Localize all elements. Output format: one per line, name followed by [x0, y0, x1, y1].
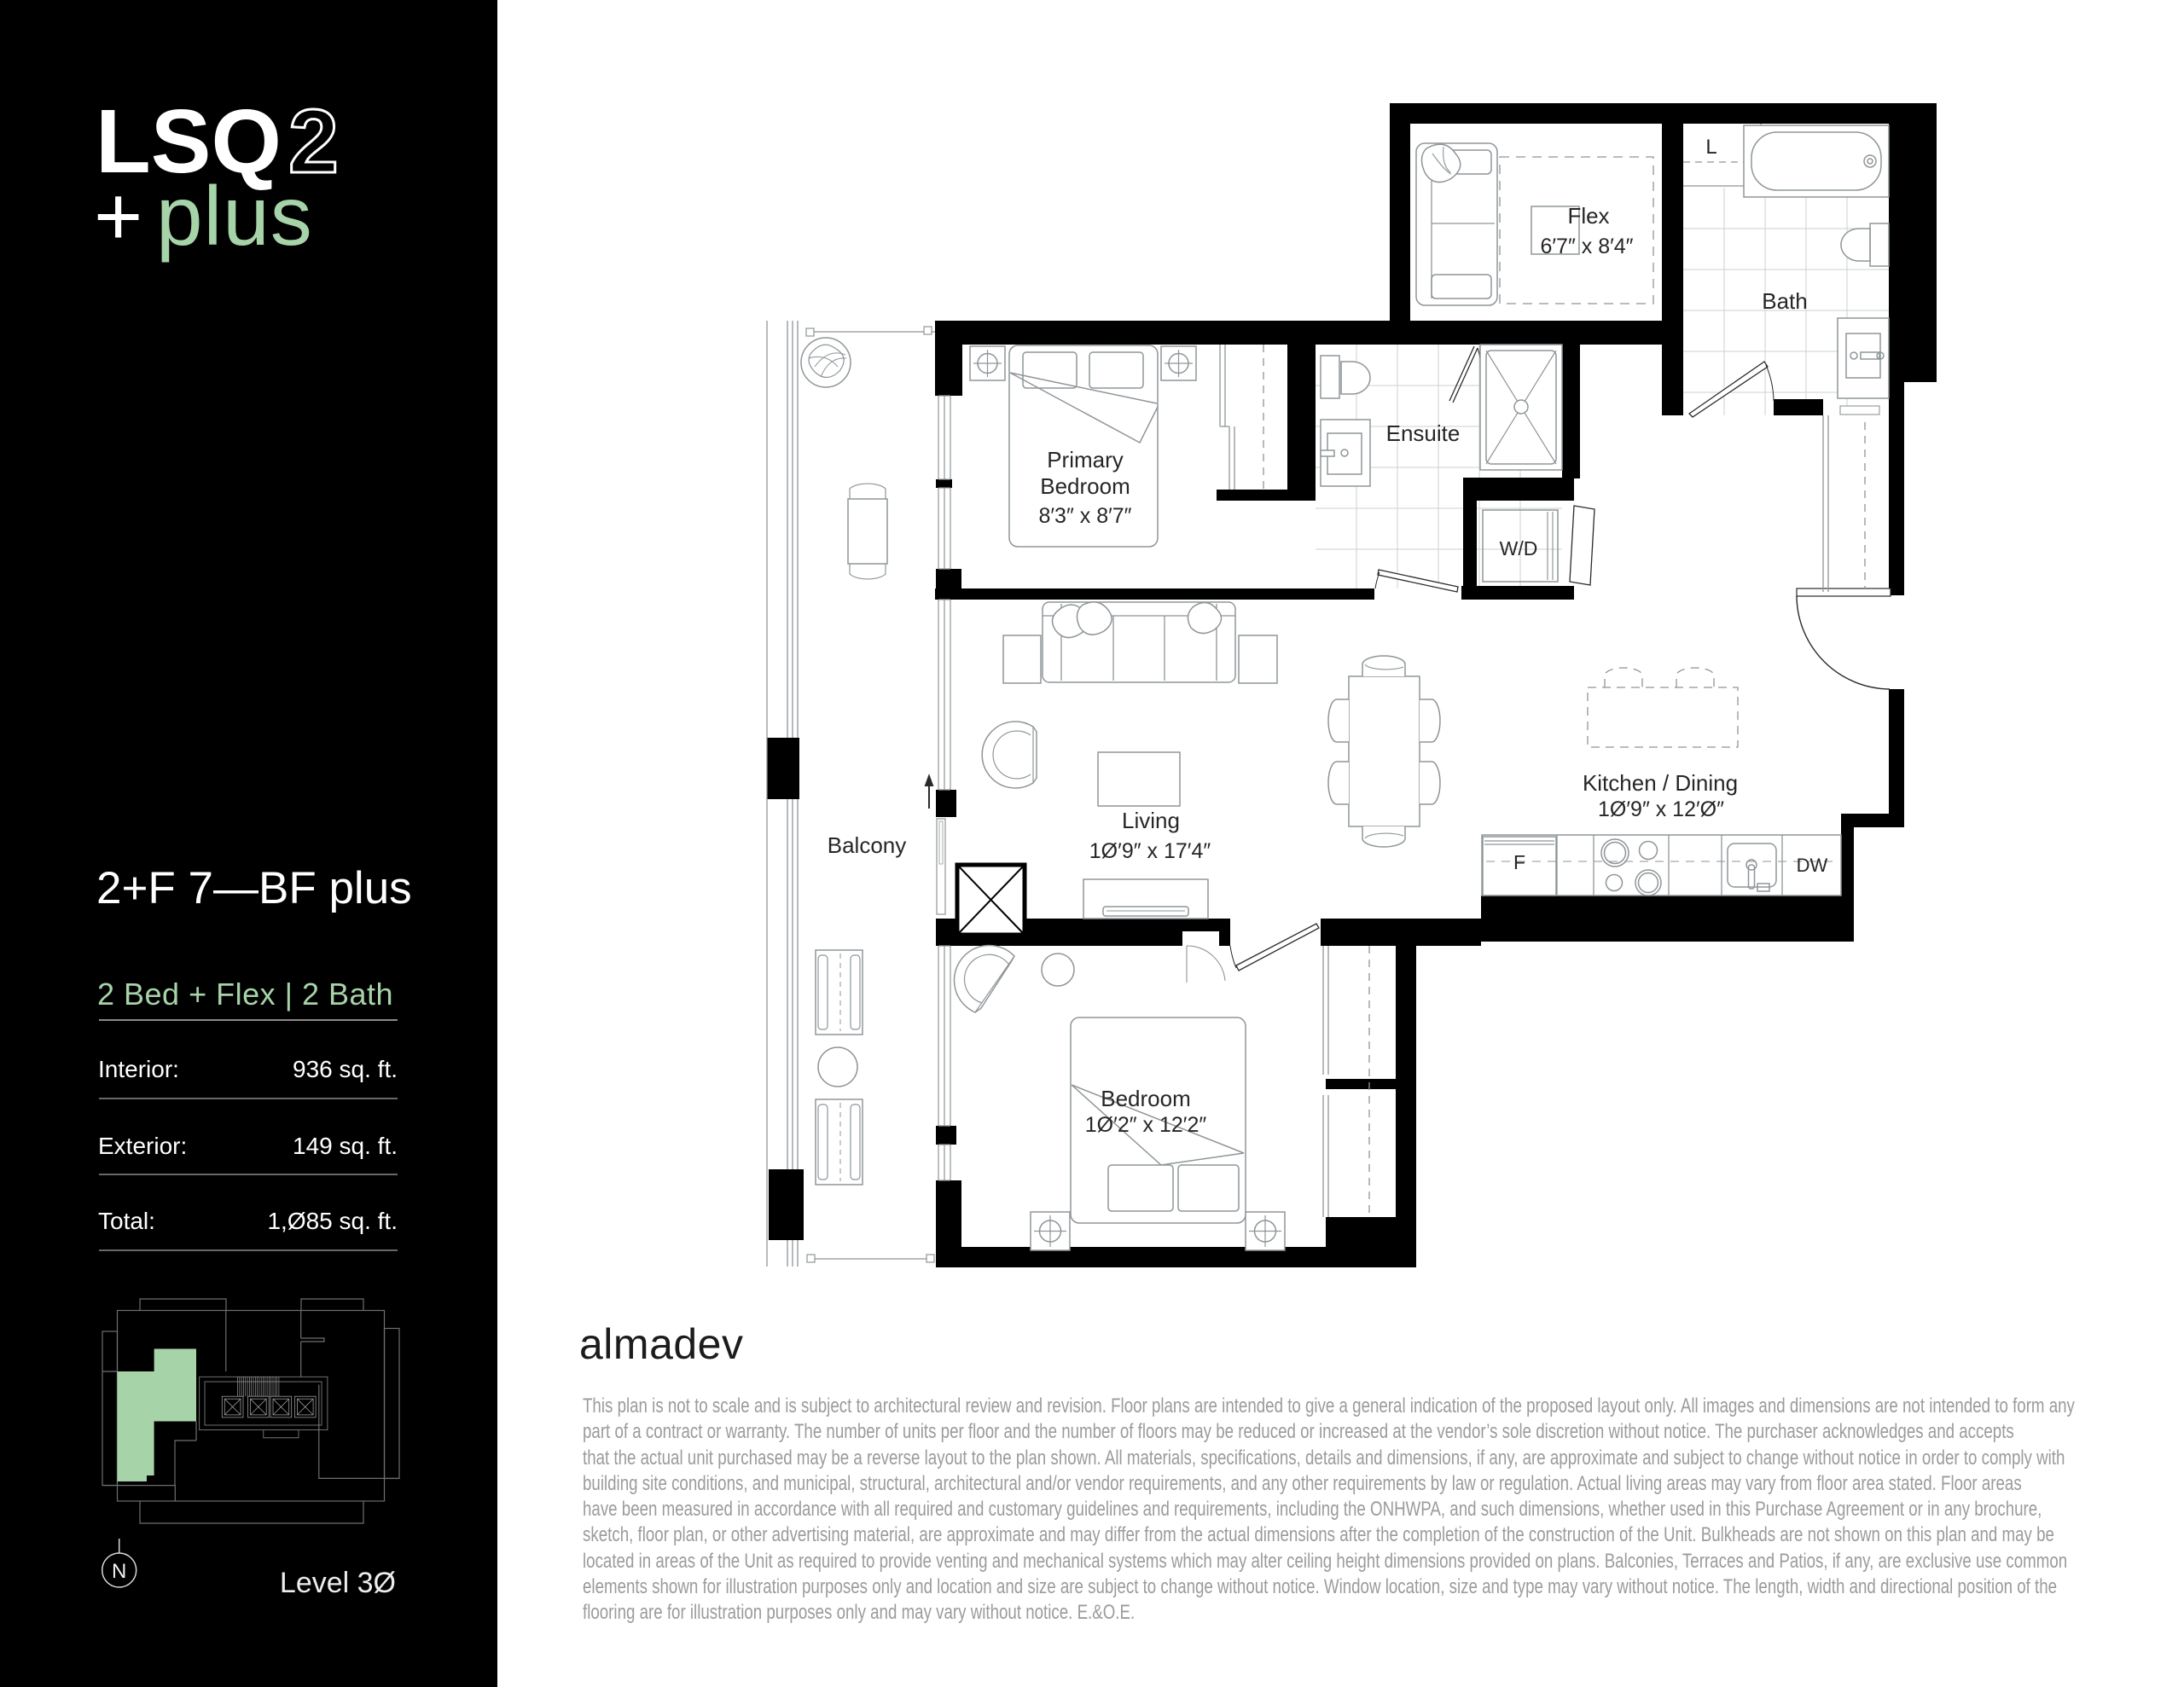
svg-text:Level 3Ø: Level 3Ø [280, 1567, 396, 1599]
svg-text:L: L [1705, 136, 1716, 159]
svg-text:Interior:: Interior: [98, 1056, 179, 1082]
svg-text:+: + [94, 169, 142, 263]
svg-text:Bedroom: Bedroom [1101, 1086, 1191, 1111]
svg-text:W/D: W/D [1500, 537, 1538, 559]
svg-text:F: F [1513, 851, 1525, 873]
svg-text:936 sq. ft.: 936 sq. ft. [293, 1056, 398, 1082]
svg-text:Exterior:: Exterior: [98, 1133, 187, 1159]
svg-text:Bath: Bath [1762, 288, 1808, 314]
svg-text:DW: DW [1797, 855, 1828, 876]
svg-text:1Ø′2″ x 12′2″: 1Ø′2″ x 12′2″ [1085, 1113, 1207, 1137]
svg-text:1Ø′9″ x 17′4″: 1Ø′9″ x 17′4″ [1089, 839, 1211, 863]
svg-text:1,Ø85 sq. ft.: 1,Ø85 sq. ft. [267, 1208, 398, 1234]
svg-text:Total:: Total: [98, 1208, 155, 1234]
svg-text:N: N [112, 1560, 126, 1583]
svg-text:Balcony: Balcony [828, 832, 907, 858]
svg-text:Flex: Flex [1567, 203, 1609, 229]
svg-text:Ensuite: Ensuite [1386, 420, 1461, 446]
svg-text:8′3″ x 8′7″: 8′3″ x 8′7″ [1038, 504, 1131, 528]
svg-text:1Ø′9″ x 12′Ø″: 1Ø′9″ x 12′Ø″ [1598, 797, 1724, 821]
svg-text:6′7″ x 8′4″: 6′7″ x 8′4″ [1540, 235, 1633, 258]
svg-text:2 Bed + Flex | 2 Bath: 2 Bed + Flex | 2 Bath [97, 977, 393, 1012]
svg-text:149 sq. ft.: 149 sq. ft. [293, 1133, 398, 1159]
svg-text:Bedroom: Bedroom [1040, 473, 1130, 499]
svg-text:2+F 7—BF plus: 2+F 7—BF plus [96, 863, 412, 913]
svg-text:plus: plus [156, 169, 313, 263]
svg-text:Primary: Primary [1047, 447, 1124, 472]
svg-text:Living: Living [1122, 808, 1180, 833]
svg-text:Kitchen / Dining: Kitchen / Dining [1583, 770, 1738, 796]
